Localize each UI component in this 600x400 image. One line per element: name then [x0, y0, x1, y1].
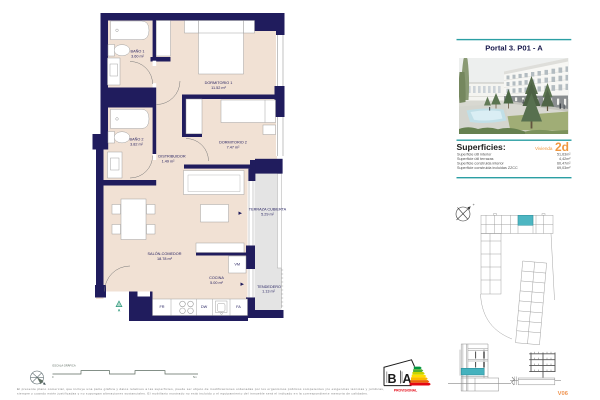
svg-text:B: B: [388, 372, 397, 386]
svg-text:Superficie útil interior: Superficie útil interior: [457, 152, 492, 156]
svg-text:FR: FR: [159, 305, 164, 309]
svg-text:4,42m²: 4,42m²: [559, 157, 571, 161]
svg-text:COCINA: COCINA: [209, 276, 224, 280]
svg-text:Superficies:: Superficies:: [457, 142, 506, 152]
svg-text:DORMITORIO 1: DORMITORIO 1: [205, 81, 233, 85]
svg-text:60,47m²: 60,47m²: [557, 162, 571, 166]
svg-text:1.49 m²: 1.49 m²: [162, 160, 176, 164]
svg-text:PROVISIONAL: PROVISIONAL: [394, 389, 417, 393]
svg-text:Superficie útil terrazas: Superficie útil terrazas: [457, 157, 494, 161]
svg-text:ESCALA GRÁFICA: ESCALA GRÁFICA: [53, 364, 76, 368]
svg-text:5.29 m²: 5.29 m²: [261, 213, 275, 217]
svg-text:TENDEDERO: TENDEDERO: [257, 285, 281, 289]
svg-text:3.82 m²: 3.82 m²: [130, 143, 144, 147]
svg-text:DORMITORIO 2: DORMITORIO 2: [219, 141, 247, 145]
svg-text:11.52 m²: 11.52 m²: [211, 86, 226, 90]
svg-text:DISTRIBUIDOR: DISTRIBUIDOR: [158, 155, 185, 159]
svg-text:Superficie construida interior: Superficie construida interior: [457, 162, 505, 166]
svg-text:51,63m²: 51,63m²: [557, 152, 571, 156]
svg-text:1.13 m²: 1.13 m²: [262, 290, 276, 294]
svg-text:El presente plano comercial, q: El presente plano comercial, que incluye…: [17, 387, 384, 391]
svg-text:BAÑO 2: BAÑO 2: [130, 137, 144, 142]
svg-text:Vivienda: Vivienda: [535, 146, 553, 151]
svg-text:BAÑO 1: BAÑO 1: [131, 49, 145, 54]
svg-text:3.60 m²: 3.60 m²: [131, 55, 145, 59]
svg-text:DW: DW: [201, 305, 208, 309]
svg-text:SALÓN-COMEDOR: SALÓN-COMEDOR: [148, 251, 182, 256]
svg-text:siempre y cuando estén justifi: siempre y cuando estén justificadas y no…: [17, 391, 368, 395]
svg-text:VM: VM: [234, 263, 240, 267]
svg-text:Portal 3. P01 - A: Portal 3. P01 - A: [485, 44, 543, 53]
svg-text:A: A: [118, 309, 121, 313]
svg-text:18.78 m²: 18.78 m²: [157, 257, 173, 261]
svg-text:TERRAZA CUBIERTA: TERRAZA CUBIERTA: [249, 208, 287, 212]
svg-text:V06: V06: [558, 391, 569, 397]
svg-text:Superficie construida incluida: Superficie construida incluidas ZZCC: [457, 166, 518, 170]
svg-text:69,03m²: 69,03m²: [557, 166, 571, 170]
svg-text:FA: FA: [236, 305, 241, 309]
svg-text:5.00 m²: 5.00 m²: [210, 281, 224, 285]
svg-text:7.47 m²: 7.47 m²: [227, 146, 241, 150]
